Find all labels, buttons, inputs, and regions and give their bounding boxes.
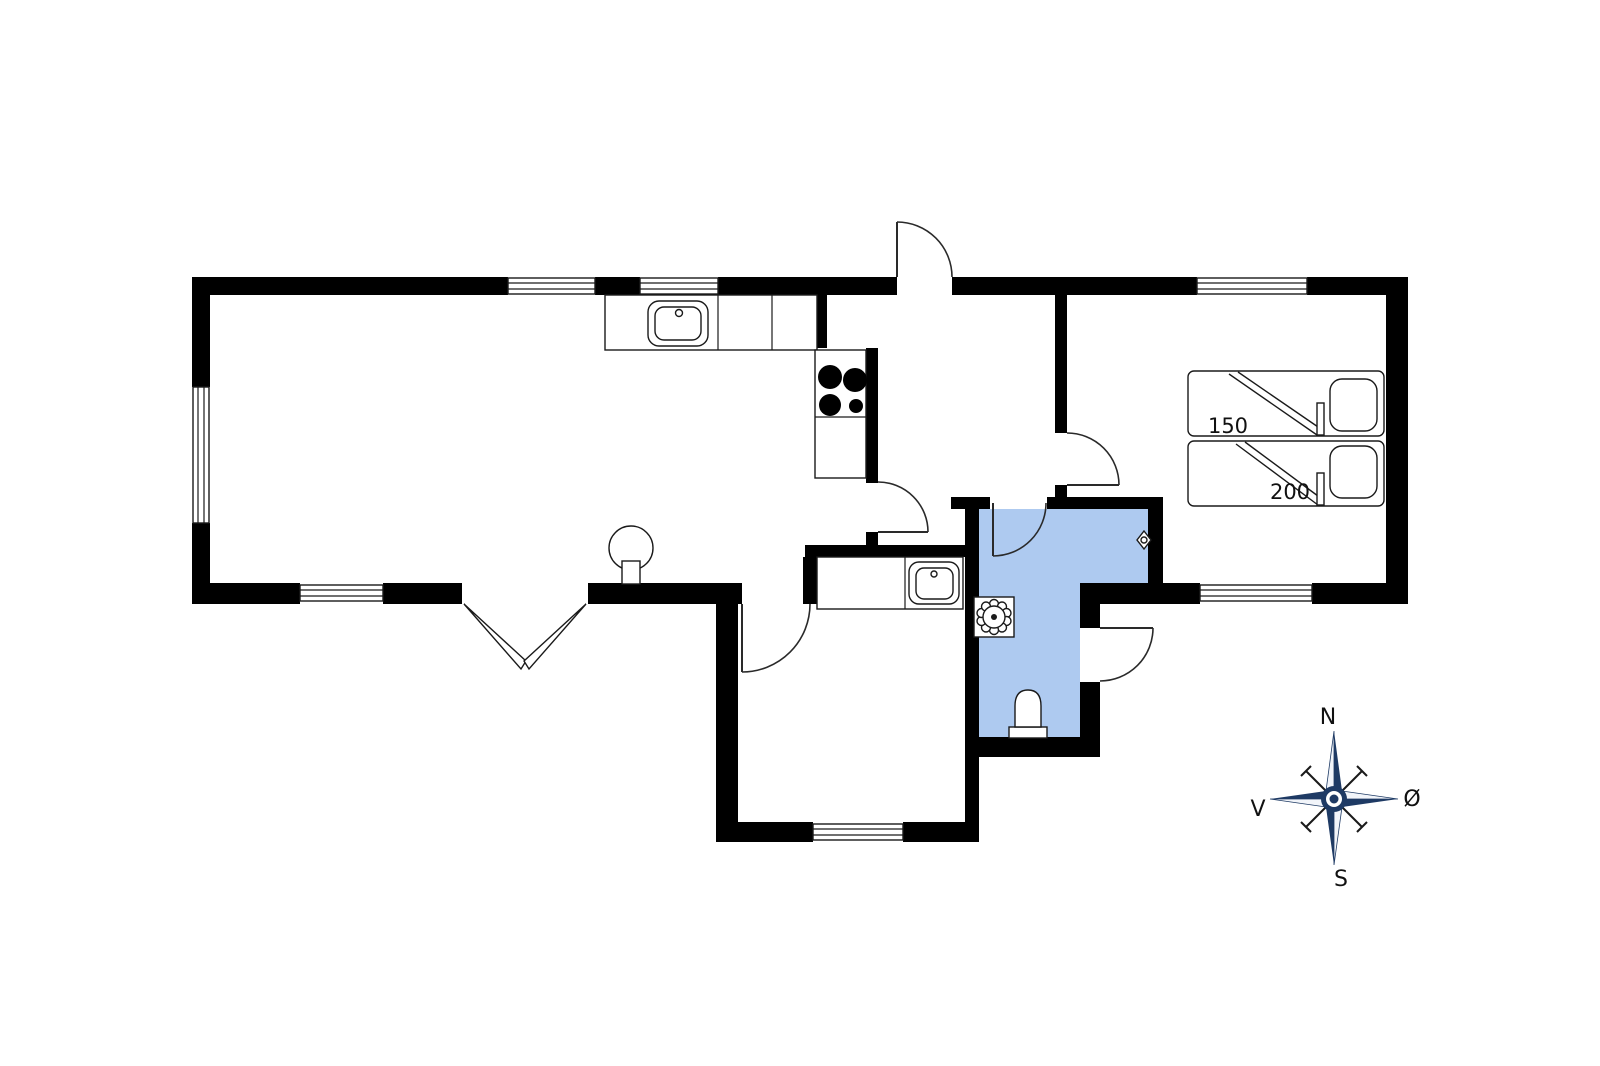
compass-east-label: Ø — [1403, 787, 1420, 812]
window-living-left — [193, 387, 209, 523]
window-bedroom-bottom — [1200, 585, 1312, 601]
floor-plan-page: 150 200 N Ø S V — [0, 0, 1600, 1066]
window-living-bottom — [300, 585, 383, 601]
walls — [192, 277, 1408, 842]
bed-width-label: 150 — [1208, 414, 1248, 438]
floor-plan: 150 200 N Ø S V — [0, 0, 1600, 1066]
wood-stove-icon — [609, 526, 653, 584]
window-kitchen-top — [640, 278, 718, 294]
utility-counter — [817, 557, 963, 609]
entrance-door — [897, 222, 952, 277]
utility-door — [742, 604, 810, 672]
window-living-top-1 — [508, 278, 595, 294]
kitchen-counter — [605, 295, 817, 350]
french-doors — [464, 604, 586, 669]
living-hall-door — [878, 482, 928, 532]
compass-south-label: S — [1334, 867, 1348, 892]
compass-west-label: V — [1250, 797, 1265, 822]
kitchen-sink-icon — [648, 301, 708, 346]
bedroom-door — [1067, 433, 1119, 485]
bed-length-label: 200 — [1270, 480, 1310, 504]
compass-north-label: N — [1320, 705, 1336, 730]
shower-drain-icon — [974, 597, 1014, 637]
window-bedroom-top — [1197, 278, 1307, 294]
stove-counter — [815, 350, 867, 478]
utility-sink-icon — [909, 562, 959, 604]
pillows — [1330, 379, 1377, 498]
double-bed: 150 200 — [1188, 371, 1384, 506]
bathroom-exterior-door — [1100, 628, 1153, 681]
compass-rose-icon: N Ø S V — [1250, 705, 1420, 892]
window-utility-bottom — [813, 824, 903, 840]
